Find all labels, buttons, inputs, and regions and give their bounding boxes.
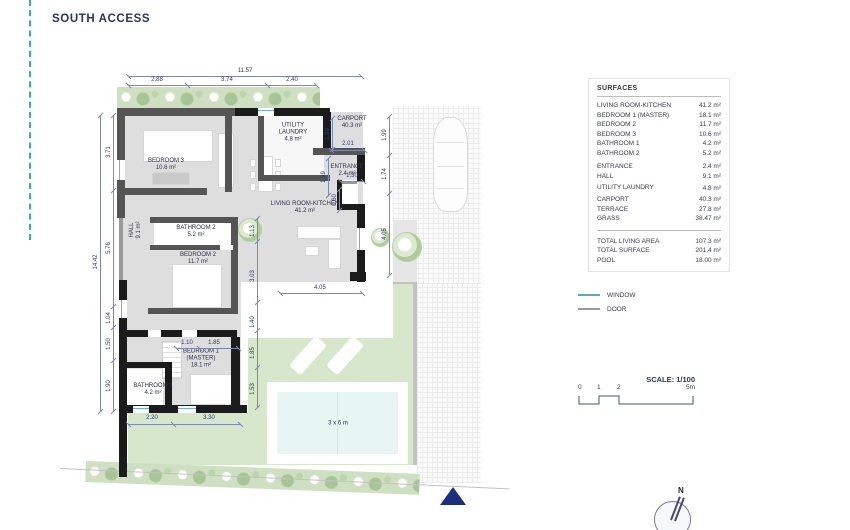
wall [119,218,123,280]
dim-line [339,189,340,211]
wall [231,217,238,313]
table-row: HALL9.1 m² [597,172,721,182]
wardrobe-bedroom3 [152,172,190,185]
dim-line [176,348,239,349]
chair [250,183,256,191]
door-line-icon [578,308,600,310]
plot-boundary-connector [393,282,417,284]
door-gap [182,330,197,337]
dim-label: 2.20 [146,415,158,421]
dim-label: 3.03 [250,270,256,282]
window-line-icon [578,294,600,296]
window-marker [117,160,125,180]
wall [125,362,167,368]
dim-line [113,115,114,412]
window-marker [119,300,127,318]
table-row: BEDROOM 1 (MASTER)18.1 m² [597,111,721,121]
dim-label: 1.30 [346,173,358,179]
wall [225,112,232,192]
dim-label: 1.50 [106,338,112,350]
floorplan-sheet: SOUTH ACCESS 3 x 6 m [0,0,850,530]
scale-numbers: 0 1 2 5m [578,384,695,393]
plot-boundary-right [413,284,417,465]
south-access-arrow-icon [440,487,466,505]
scale-label: SCALE: 1/100 [578,375,695,384]
legend-door: DOOR [578,302,636,316]
room-label-bedroom2: BEDROOM 2 11.7 m² [170,252,226,266]
wall [258,175,330,181]
divider [597,230,721,231]
car-top-view [433,117,468,212]
wall [150,217,238,223]
dim-label: 2.40 [286,77,298,83]
dim-label: 3.71 [106,146,112,158]
table-row: BEDROOM 310.6 m² [597,130,721,140]
scale-block: SCALE: 1/100 0 1 2 5m [578,375,695,412]
dim-line [389,116,390,276]
legend-window: WINDOW [578,288,636,302]
surfaces-header: SURFACES [597,85,721,92]
bed-bedroom1 [190,374,232,405]
dim-label: 2.01 [342,141,354,147]
wall [148,308,238,314]
wall [350,272,366,281]
dim-label: 1.99 [325,128,331,140]
pool-size-label: 3 x 6 m [328,421,348,428]
dim-label: 14.42 [93,254,99,269]
dim-line [340,181,364,182]
dim-label: 4.05 [314,285,326,291]
table-row: UTILITY LAUNDRY4.8 m² [597,181,721,195]
bed-bedroom2 [172,264,222,308]
dim-label: 1.90 [106,380,112,392]
dim-line [100,115,101,412]
window-marker [133,406,149,413]
dim-label: 3.74 [221,77,233,83]
room-label-carport: CARPORT 40.3 m² [330,116,374,130]
window-marker [258,108,274,116]
dim-line [128,424,241,425]
dim-line [280,293,363,294]
table-row: LIVING ROOM-KITCHEN41.2 m² [597,101,721,111]
dim-line [257,218,258,408]
table-row: BATHROOM 14.2 m² [597,139,721,149]
wall [258,116,264,178]
driveway-paving [417,284,481,483]
table-row-total: TOTAL LIVING AREA107.3 m² [597,237,721,247]
hedge-top [117,87,320,108]
dim-label: 1.13 [250,225,256,237]
sofa [297,226,341,239]
table-row: GRASS38.47 m² [597,214,721,224]
wall [117,108,235,116]
table-row: CARPORT40.3 m² [597,195,721,205]
chair [275,183,281,191]
hedge-bottom [85,461,420,495]
room-label-bathroom1: BATHROOM 1 4.2 m² [125,383,181,397]
door-marker [342,182,357,184]
tree [392,232,422,262]
table-row: BATHROOM 25.2 m² [597,149,721,159]
chair [250,159,256,167]
dim-label: 1.99 [321,171,327,183]
dim-label: 1.74 [382,168,388,180]
chair [275,159,281,167]
divider [597,96,721,97]
dim-line [332,118,333,150]
dim-label: 5.76 [106,242,112,254]
table-row-total: TOTAL SURFACE201,4 m² [597,246,721,256]
window-marker [178,406,196,413]
dim-label: 1.40 [250,316,256,328]
door-gap [148,330,161,337]
dim-label: 11.57 [238,68,253,74]
boundary-dashed-guide [29,0,31,240]
table-row: ENTRANCE2.4 m² [597,162,721,172]
wall [235,108,330,116]
room-label-utility: UTILITY LAUNDRY 4.8 m² [276,123,310,144]
surfaces-table: SURFACES LIVING ROOM-KITCHEN41.2 m² BEDR… [588,78,730,272]
table-row: BEDROOM 211.7 m² [597,120,721,130]
table-row-total: POOL18.00 m² [597,256,721,266]
dim-label: 0.60 [332,194,338,206]
door-gap [220,245,233,250]
window-marker [357,228,365,250]
dim-label: 1.99 [382,129,388,141]
dim-label: 4.05 [382,228,388,240]
wall [125,188,207,195]
room-label-hall: HALL 9.1 m² [129,213,143,247]
room-label-bathroom2: BATHROOM 2 5.2 m² [166,225,226,239]
scale-bar-icon [578,393,695,407]
dim-label: 1.04 [106,312,112,324]
dim-label: 2.88 [151,77,163,83]
dim-line [328,158,329,196]
dim-line [128,85,317,86]
page-title: SOUTH ACCESS [52,13,150,25]
room-label-bedroom3: BEDROOM 3 10.6 m² [140,158,192,172]
dim-label: 3.30 [203,415,215,421]
table-row: TERRACE27.8 m² [597,205,721,215]
dim-label: 1.53 [250,383,256,395]
north-label: N [678,486,684,495]
wall [125,330,237,337]
chair [250,171,256,179]
dim-label: 1.85 [208,340,220,346]
coffee-table [305,246,319,256]
grass-right-strip [393,284,415,338]
dim-label: 1.85 [250,347,256,359]
dim-line [331,150,365,151]
dim-label: 1.10 [181,340,193,346]
sofa [328,239,341,269]
legend: WINDOW DOOR [578,288,636,316]
